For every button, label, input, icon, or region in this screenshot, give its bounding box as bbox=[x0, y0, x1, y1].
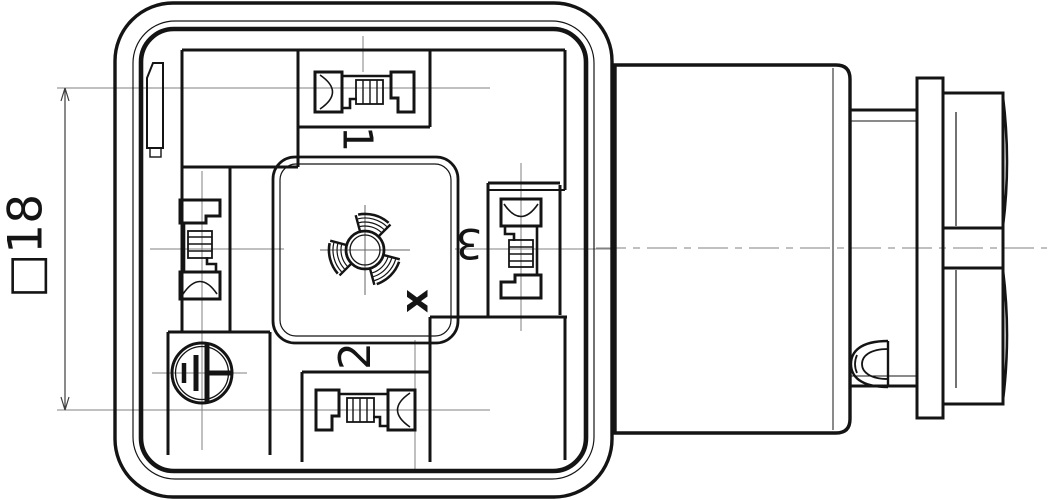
terminal-3-label: 3 bbox=[456, 222, 483, 264]
dimension-lines bbox=[61, 88, 69, 410]
center-mark-label: x bbox=[397, 289, 434, 313]
dimension-label: □18 bbox=[3, 194, 50, 298]
tri-lobe-screw bbox=[320, 205, 410, 295]
keyway-slot bbox=[147, 63, 163, 157]
side-view bbox=[615, 65, 1007, 433]
terminal-1 bbox=[315, 72, 414, 112]
technical-drawing-canvas: □18 1 2 3 x bbox=[0, 0, 1048, 500]
side-body bbox=[615, 65, 850, 433]
centerlines bbox=[57, 36, 1047, 470]
screw-lobes bbox=[326, 211, 404, 289]
terminal-1-label: 1 bbox=[337, 126, 378, 152]
connector-drawing-svg bbox=[0, 0, 1048, 500]
side-screw-head bbox=[851, 341, 888, 387]
terminal-2-label: 2 bbox=[334, 342, 378, 370]
front-view bbox=[115, 3, 612, 497]
